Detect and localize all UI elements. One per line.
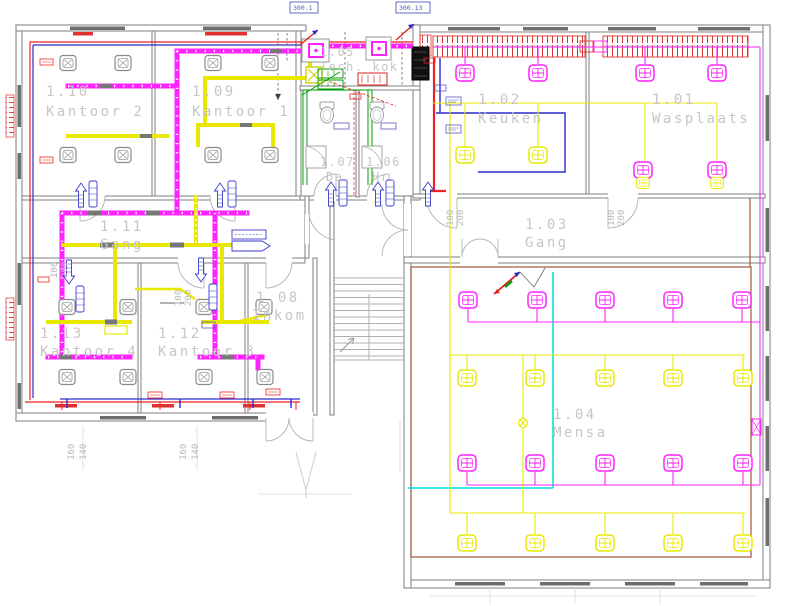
room-label-1-11: 1.11 Gang <box>100 219 144 253</box>
svg-text:Kantoor 3: Kantoor 3 <box>158 344 256 360</box>
svg-text:Inkom: Inkom <box>252 308 307 324</box>
toilet-icon <box>320 102 334 123</box>
svg-text:140: 140 <box>79 444 89 460</box>
svg-text:1.12: 1.12 <box>158 326 202 342</box>
lamps-yellow <box>456 147 752 551</box>
lamp-icon <box>456 65 474 81</box>
svg-text:1.06: 1.06 <box>366 155 401 169</box>
svg-text:1.13: 1.13 <box>40 326 84 342</box>
svg-text:1.02: 1.02 <box>478 92 522 108</box>
staircase <box>334 278 404 360</box>
svg-text:1.10: 1.10 <box>46 84 90 100</box>
floor-plan-drawing: 300.1 300.13 160 140 160 140 100 200 100… <box>0 0 800 606</box>
svg-text:100: 100 <box>607 210 617 226</box>
svg-text:200: 200 <box>60 262 70 278</box>
svg-text:1.09: 1.09 <box>192 84 236 100</box>
svg-text:1.08: 1.08 <box>256 290 300 306</box>
room-label-1-10: 1.10 Kantoor 2 <box>46 84 144 120</box>
svg-text:1.05: 1.05 <box>320 45 355 59</box>
svg-text:200: 200 <box>456 210 466 226</box>
svg-text:160: 160 <box>179 444 189 460</box>
room-label-1-04: 1.04 Mensa <box>553 407 608 441</box>
room-label-1-01: 1.01 Wasplaats <box>652 92 750 127</box>
reference-tags: 300.1 300.13 <box>290 2 430 13</box>
room-label-1-12: 1.12 Kantoor 3 <box>158 326 256 360</box>
air-diffuser-icon <box>60 56 76 71</box>
room-label-1-06: 1.06 Hr. <box>366 155 401 184</box>
svg-text:Kantoor 2: Kantoor 2 <box>46 104 144 120</box>
ref-tag-left: 300.1 <box>293 4 313 12</box>
lamp-icon <box>456 147 474 163</box>
svg-text:Gang: Gang <box>525 235 569 251</box>
svg-text:1.04: 1.04 <box>553 407 597 423</box>
flow-arrow-right <box>232 230 270 251</box>
room-label-1-03: 1.03 Gang <box>525 217 569 251</box>
svg-text:Da.: Da. <box>326 170 352 184</box>
svg-text:Gang: Gang <box>100 237 144 253</box>
svg-text:Keuken: Keuken <box>478 111 544 127</box>
svg-text:Wasplaats: Wasplaats <box>652 111 750 127</box>
floor-plan-canvas: 300.1 300.13 160 140 160 140 100 200 100… <box>0 0 800 606</box>
svg-text:1.11: 1.11 <box>100 219 144 235</box>
radiator-left-2 <box>6 298 14 340</box>
svg-text:200: 200 <box>617 210 627 226</box>
room-label-1-13: 1.13 Kantoor 4 <box>40 326 138 360</box>
svg-text:Kantoor 1: Kantoor 1 <box>192 104 290 120</box>
svg-text:200: 200 <box>184 290 194 306</box>
svg-text:1.07: 1.07 <box>320 155 355 169</box>
room-label-1-07: 1.07 Da. <box>320 155 355 184</box>
svg-text:Mensa: Mensa <box>553 425 608 441</box>
svg-text:100: 100 <box>50 262 60 278</box>
dim-door: 100 <box>446 210 456 226</box>
svg-text:Kantoor 4: Kantoor 4 <box>40 344 138 360</box>
ref-tag-right: 300.13 <box>399 4 423 12</box>
dim-window-width: 160 <box>67 444 77 460</box>
svg-text:Hr.: Hr. <box>372 170 398 184</box>
svg-text:100: 100 <box>174 290 184 306</box>
svg-text:1.01: 1.01 <box>652 92 696 108</box>
toilet-icon <box>370 102 384 123</box>
svg-text:Tech. kok: Tech. kok <box>320 60 399 74</box>
radiator-left-1 <box>6 95 14 137</box>
svg-text:1.03: 1.03 <box>525 217 569 233</box>
room-label-1-02: 1.02 Keuken <box>478 92 544 127</box>
svg-text:140: 140 <box>191 444 201 460</box>
light-switch-icon <box>519 419 528 428</box>
